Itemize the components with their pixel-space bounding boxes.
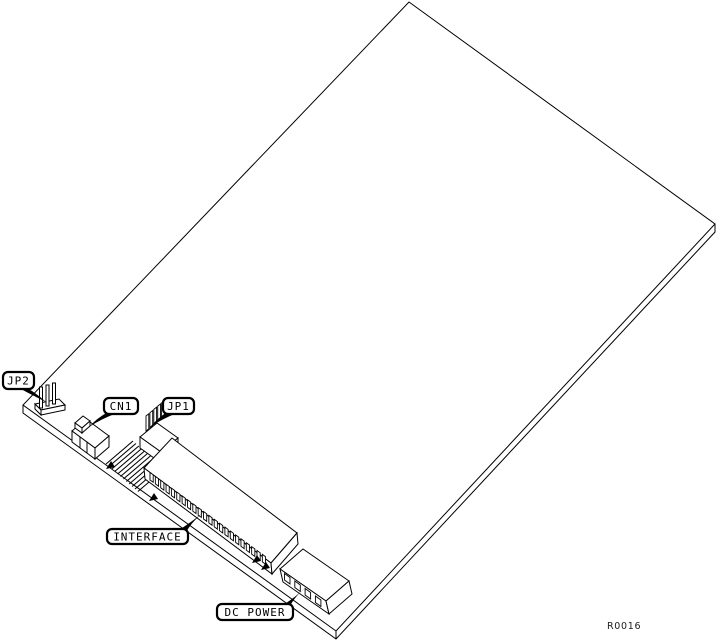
pin-mark — [187, 500, 190, 510]
jp2-pin — [46, 385, 49, 406]
pin-mark — [146, 414, 149, 431]
pcb-diagram: JP2 CN1 JP1 INTERFACE DC POWER R0016 — [0, 0, 717, 640]
pin-mark — [182, 496, 185, 506]
callout-dc-power-label: DC POWER — [225, 606, 286, 619]
drawing-ref-code: R0016 — [607, 621, 641, 632]
pin-mark — [166, 484, 169, 494]
pin-mark — [193, 504, 196, 514]
callout-jp1-label: JP1 — [167, 400, 190, 413]
pin-mark — [220, 523, 223, 533]
callout-interface-label: INTERFACE — [113, 531, 182, 544]
pin-mark — [241, 539, 244, 549]
pin-mark — [204, 512, 207, 522]
pin-mark — [209, 515, 212, 525]
pin-mark — [225, 527, 228, 537]
pin-mark — [198, 508, 201, 518]
callout-jp2-label: JP2 — [7, 375, 30, 388]
pin-mark — [236, 535, 239, 545]
pin-mark — [246, 543, 249, 553]
pin-mark — [177, 492, 180, 502]
pin-mark — [252, 547, 255, 557]
pcb-line-drawing: JP2 CN1 JP1 INTERFACE DC POWER R0016 — [0, 0, 717, 640]
pin-mark — [155, 476, 158, 486]
pin-mark — [150, 473, 153, 483]
pin-mark — [171, 488, 174, 498]
jp2-pin — [53, 383, 56, 404]
pin-mark — [230, 531, 233, 541]
pin-mark — [161, 480, 164, 490]
pin-mark — [262, 554, 265, 564]
callout-cn1-label: CN1 — [110, 400, 133, 413]
pin-mark — [214, 519, 217, 529]
